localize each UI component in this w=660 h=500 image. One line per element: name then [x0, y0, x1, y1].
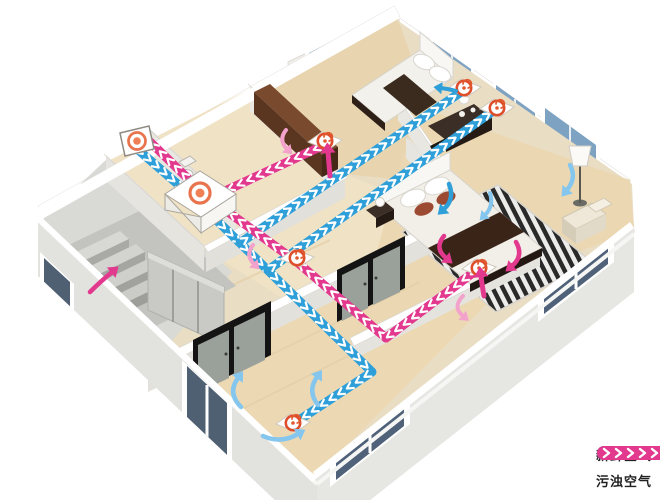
house-illustration — [0, 0, 660, 500]
legend-label-exhaust-air: 污浊空气 — [596, 471, 652, 490]
ventilation-diagram: 新鲜空气 污浊空气 — [0, 0, 660, 500]
legend: 新鲜空气 污浊空气 — [596, 445, 652, 490]
legend-item-exhaust-air: 污浊空气 — [596, 471, 652, 490]
exhaust-air-arrow-pill — [596, 445, 660, 461]
house-structure — [32, 6, 634, 500]
